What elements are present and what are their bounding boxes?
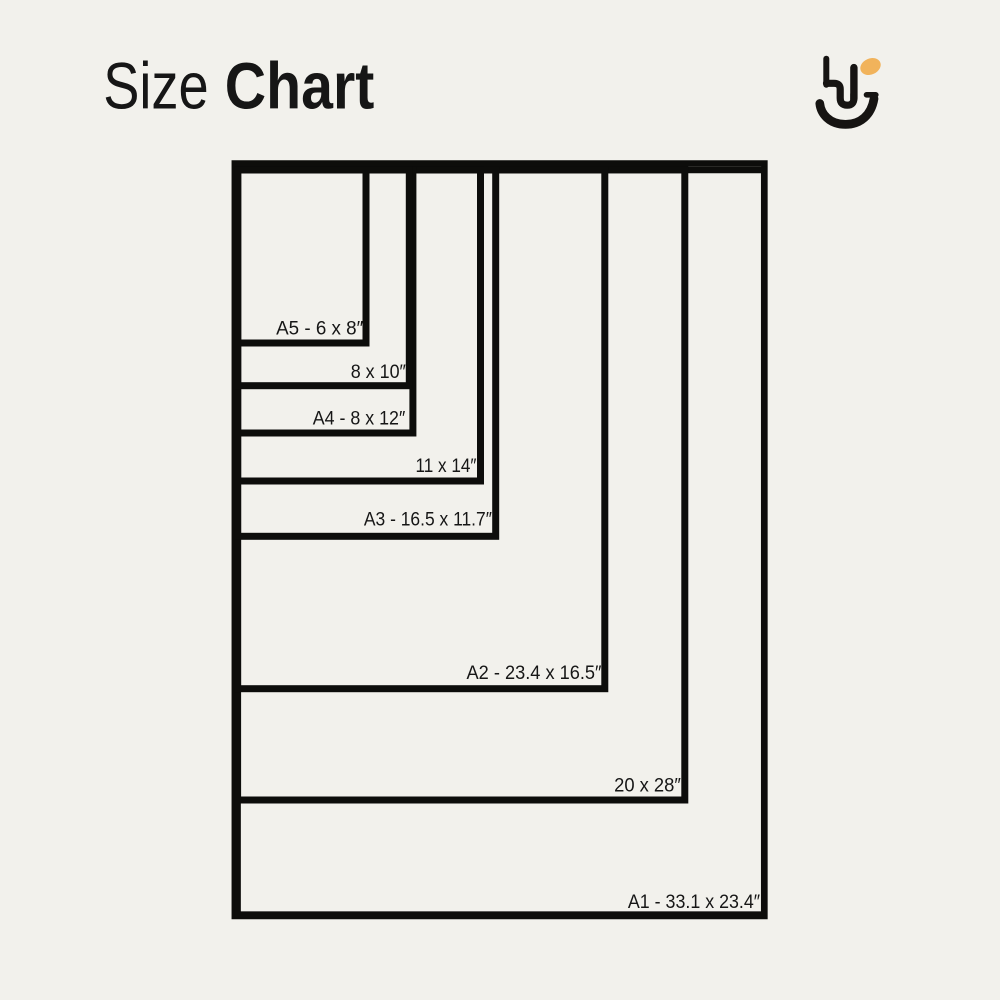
svg-text:20 x 28″: 20 x 28″ (614, 774, 681, 796)
svg-text:A5 - 6 x 8″: A5 - 6 x 8″ (276, 318, 363, 340)
svg-text:A1 - 33.1 x 23.4″: A1 - 33.1 x 23.4″ (628, 891, 760, 913)
svg-text:8 x 10″: 8 x 10″ (351, 361, 406, 383)
svg-text:Chart: Chart (225, 50, 375, 123)
svg-text:A2 - 23.4 x 16.5″: A2 - 23.4 x 16.5″ (467, 662, 602, 684)
svg-text:A4 - 8 x 12″: A4 - 8 x 12″ (313, 407, 406, 429)
svg-text:11 x 14″: 11 x 14″ (416, 455, 477, 477)
svg-text:A3 - 16.5 x 11.7″: A3 - 16.5 x 11.7″ (364, 509, 492, 531)
svg-text:Size: Size (103, 50, 209, 123)
